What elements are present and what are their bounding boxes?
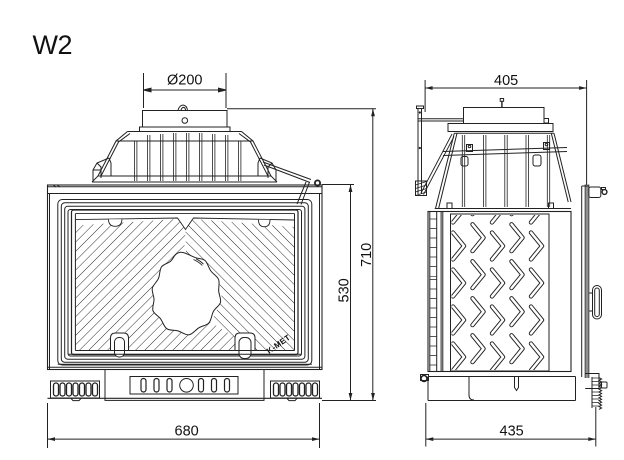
svg-text:680: 680 xyxy=(175,424,199,440)
svg-text:710: 710 xyxy=(359,243,375,267)
svg-text:Ø200: Ø200 xyxy=(167,73,202,89)
svg-text:W2: W2 xyxy=(33,30,73,60)
svg-text:530: 530 xyxy=(337,278,353,302)
svg-text:435: 435 xyxy=(500,424,524,440)
svg-text:405: 405 xyxy=(494,73,518,89)
